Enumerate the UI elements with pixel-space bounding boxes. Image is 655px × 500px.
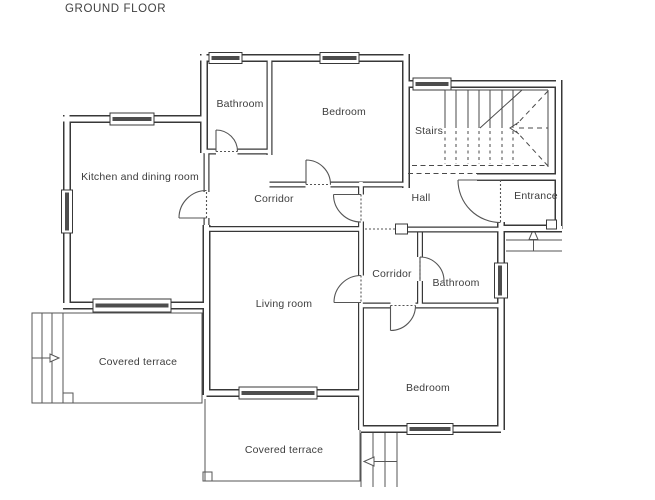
stair-landing-hidden [516,91,548,166]
door-entrance [458,180,501,223]
window-bathroom-top [209,53,242,64]
window-kitchen-left [62,190,73,233]
door-hall-corridor [334,195,362,223]
window-bedroom-top [320,53,359,64]
door-bathroom-top [216,130,238,152]
room-label-terrace-left: Covered terrace [99,356,177,368]
right-steps-arrow [364,457,374,466]
floor-plan-drawing [0,0,655,500]
window-bathroom-lower [495,263,508,298]
window-kitchen-bottom [93,299,171,312]
door-bedroom-top [306,160,331,185]
room-label-bedroom-lower: Bedroom [406,382,450,394]
room-label-living-room: Living room [256,298,312,310]
plan-title: GROUND FLOOR [65,3,166,15]
stairs-under-hidden [408,166,548,174]
terrace-left-steps [32,313,59,403]
room-label-entrance: Entrance [514,190,558,202]
room-label-kitchen: Kitchen and dining room [81,171,199,183]
stair-treads-hidden [445,131,513,164]
window-bedroom-lower [407,424,453,435]
room-label-corridor-lower: Corridor [372,268,412,280]
walls-outer-dark [63,54,562,430]
room-label-hall: Hall [412,192,431,204]
room-label-stairs: Stairs [415,125,443,137]
window-stairs [413,78,451,90]
room-label-bedroom-top: Bedroom [322,106,366,118]
stair-treads-solid [445,90,513,128]
walls-outer-core [63,54,562,430]
terrace-right-steps [361,433,397,487]
door-kitchen [179,191,207,219]
stair-walk-line-solid [480,90,522,128]
windows-layer [62,53,508,435]
room-label-corridor-top: Corridor [254,193,294,205]
window-living-room [239,387,317,399]
terrace-bottom-outline [203,398,360,481]
window-kitchen-top [110,113,154,125]
room-label-bathroom-top: Bathroom [216,98,263,110]
door-living-room [334,276,361,303]
left-steps-arrow [50,354,59,362]
door-bedroom-lower [391,306,416,331]
floor-plan-canvas: GROUND FLOOR Bathroom Bedroom Stairs Kit… [0,0,655,500]
room-label-terrace-bottom: Covered terrace [245,444,323,456]
room-label-bathroom-lower: Bathroom [432,277,479,289]
